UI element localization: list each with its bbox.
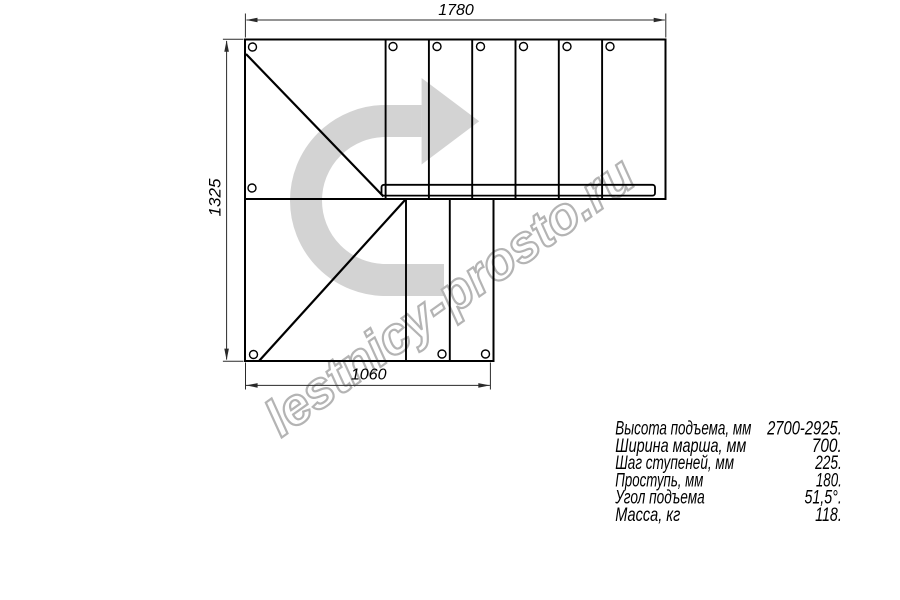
svg-text:1325: 1325 bbox=[206, 178, 225, 216]
svg-text:Масса, кг: Масса, кг bbox=[615, 505, 680, 526]
svg-text:1060: 1060 bbox=[351, 367, 387, 384]
svg-text:1780: 1780 bbox=[438, 2, 474, 19]
svg-text:118.: 118. bbox=[815, 505, 842, 526]
